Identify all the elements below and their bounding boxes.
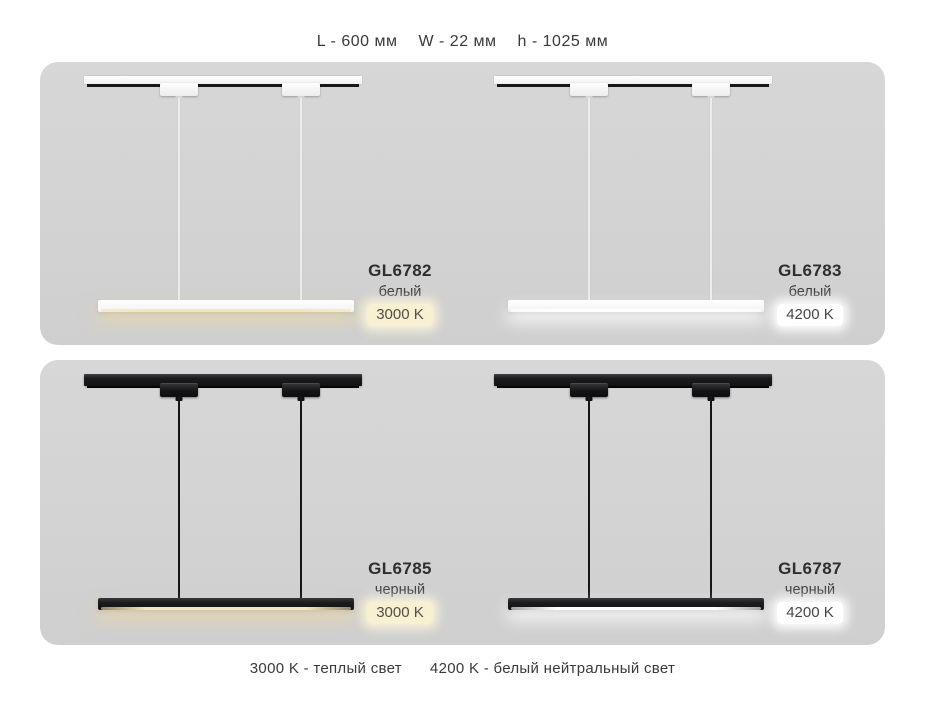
track-adapter	[570, 83, 608, 96]
track-adapter	[282, 383, 320, 397]
track-rail	[84, 76, 362, 90]
pendant-cord	[178, 98, 180, 300]
light-bar	[508, 300, 764, 312]
track-rail	[84, 374, 362, 388]
track-rail-body	[494, 374, 772, 386]
product-label: GL6783 белый 4200 K	[746, 261, 874, 326]
track-rail-body	[84, 76, 362, 84]
track-adapter	[692, 383, 730, 397]
product-cell-gl6782: GL6782 белый 3000 K	[40, 62, 450, 345]
product-sheet: L - 600 мм W - 22 мм h - 1025 мм GL6782 …	[0, 0, 925, 720]
track-adapter	[282, 83, 320, 96]
panel-white-fixtures: GL6782 белый 3000 K GL6783 белый 4200 K	[40, 62, 885, 345]
light-bar	[98, 598, 354, 610]
temperature-badge: 4200 K	[777, 602, 843, 624]
temperature-badge: 3000 K	[367, 304, 433, 326]
track-adapter	[160, 83, 198, 96]
product-label: GL6787 черный 4200 K	[746, 559, 874, 624]
product-code: GL6787	[746, 559, 874, 579]
product-code: GL6782	[336, 261, 464, 281]
dimension-width: W - 22 мм	[418, 33, 496, 51]
product-label: GL6785 черный 3000 K	[336, 559, 464, 624]
pendant-cord	[300, 396, 302, 598]
pendant-cord	[178, 396, 180, 598]
pendant-cord	[588, 396, 590, 598]
product-code: GL6783	[746, 261, 874, 281]
dimension-length: L - 600 мм	[317, 33, 398, 51]
light-bar	[508, 598, 764, 610]
track-rail-body	[84, 374, 362, 386]
product-code: GL6785	[336, 559, 464, 579]
product-finish: черный	[336, 582, 464, 598]
legend-warm: 3000 K - теплый свет	[250, 660, 402, 677]
pendant-cord	[588, 98, 590, 300]
track-rail	[494, 374, 772, 388]
track-adapter	[692, 83, 730, 96]
pendant-cord	[300, 98, 302, 300]
track-rail-body	[494, 76, 772, 84]
dimension-height: h - 1025 мм	[518, 33, 609, 51]
temperature-badge: 4200 K	[777, 304, 843, 326]
temperature-legend: 3000 K - теплый свет 4200 K - белый нейт…	[0, 660, 925, 677]
product-cell-gl6785: GL6785 черный 3000 K	[40, 360, 450, 645]
dimensions-header: L - 600 мм W - 22 мм h - 1025 мм	[0, 33, 925, 51]
temperature-badge: 3000 K	[367, 602, 433, 624]
product-cell-gl6783: GL6783 белый 4200 K	[450, 62, 885, 345]
pendant-cord	[710, 98, 712, 300]
track-adapter	[160, 383, 198, 397]
product-finish: белый	[336, 284, 464, 300]
product-cell-gl6787: GL6787 черный 4200 K	[450, 360, 885, 645]
track-rail	[494, 76, 772, 90]
track-adapter	[570, 383, 608, 397]
product-finish: черный	[746, 582, 874, 598]
product-label: GL6782 белый 3000 K	[336, 261, 464, 326]
panel-black-fixtures: GL6785 черный 3000 K GL6787 черный 4200 …	[40, 360, 885, 645]
light-bar	[98, 300, 354, 312]
legend-neutral: 4200 K - белый нейтральный свет	[430, 660, 675, 677]
pendant-cord	[710, 396, 712, 598]
product-finish: белый	[746, 284, 874, 300]
